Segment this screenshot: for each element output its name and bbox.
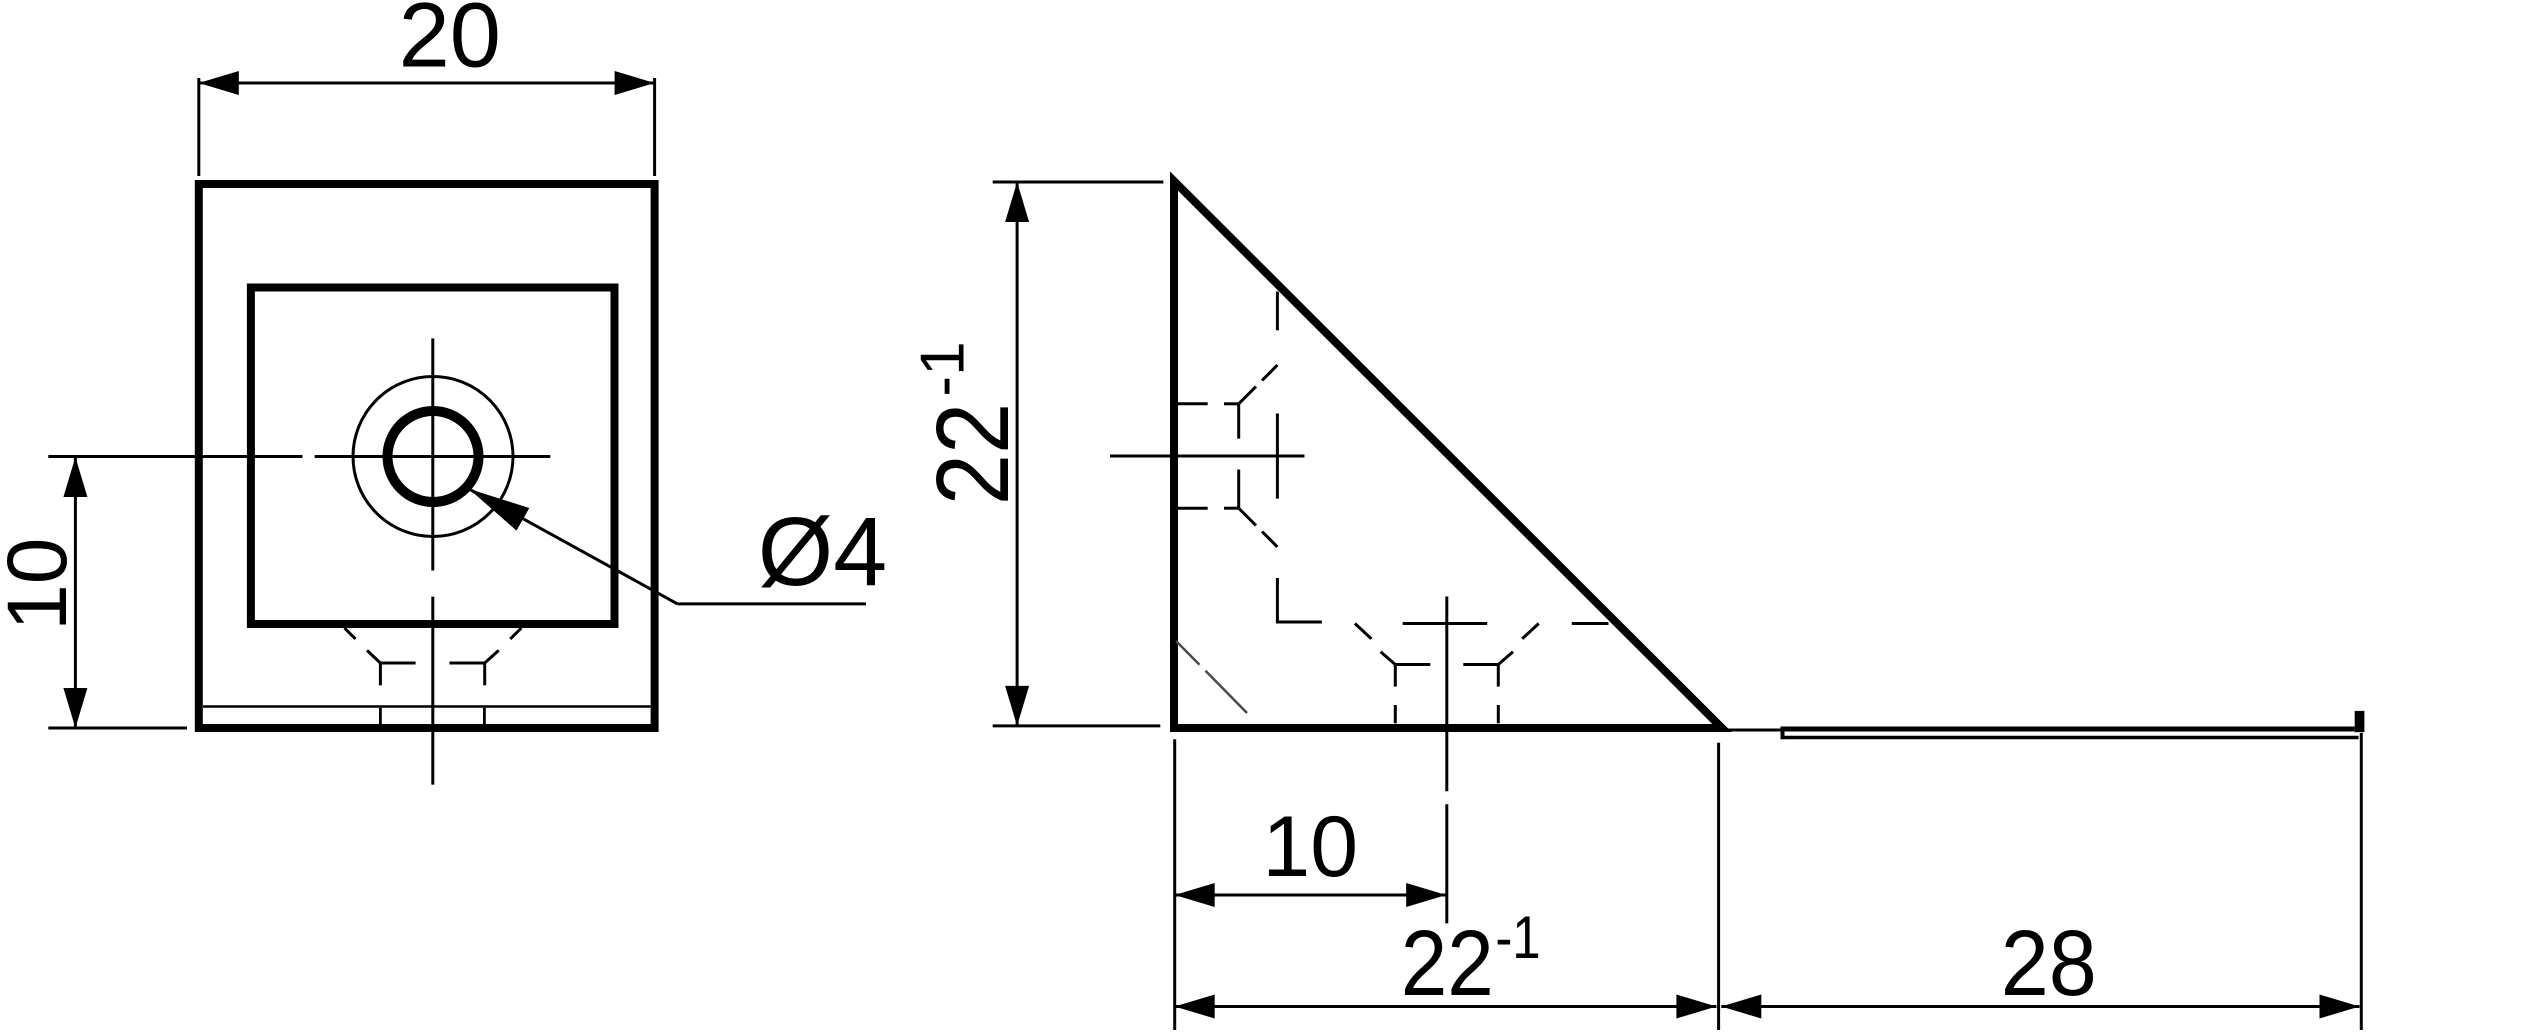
svg-text:22: 22 [914, 403, 1030, 505]
svg-text:-1: -1 [1495, 904, 1540, 971]
svg-text:10: 10 [0, 537, 84, 630]
svg-text:Ø4: Ø4 [758, 497, 887, 606]
svg-text:-1: -1 [909, 341, 978, 396]
svg-text:28: 28 [2001, 912, 2097, 1016]
svg-text:20: 20 [399, 0, 501, 87]
svg-text:10: 10 [1262, 799, 1358, 895]
svg-text:22: 22 [1401, 911, 1494, 1015]
